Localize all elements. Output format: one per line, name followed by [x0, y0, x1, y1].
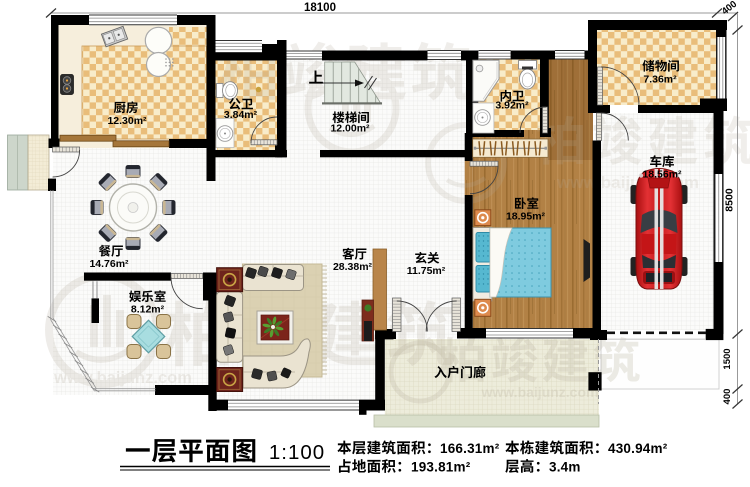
- svg-text:28.38m²: 28.38m²: [333, 261, 373, 273]
- svg-text:400: 400: [722, 389, 733, 405]
- svg-text:18.95m²: 18.95m²: [506, 211, 546, 223]
- svg-text:www.baijunz.com: www.baijunz.com: [53, 369, 192, 387]
- svg-text:12.00m²: 12.00m²: [330, 123, 370, 135]
- svg-text:3.4m: 3.4m: [549, 460, 581, 475]
- svg-text:12.30m²: 12.30m²: [107, 115, 147, 127]
- svg-text:166.31m²: 166.31m²: [440, 441, 500, 456]
- svg-text:18100: 18100: [304, 2, 336, 14]
- svg-text:8.12m²: 8.12m²: [131, 304, 165, 316]
- svg-text:14.76m²: 14.76m²: [89, 258, 129, 270]
- svg-text:www.baijunz.com: www.baijunz.com: [481, 384, 599, 400]
- svg-text:8500: 8500: [724, 188, 736, 212]
- svg-text:3.92m²: 3.92m²: [495, 100, 529, 112]
- svg-text:1500: 1500: [722, 348, 733, 369]
- svg-text:3.84m²: 3.84m²: [224, 109, 258, 121]
- svg-text:193.81m²: 193.81m²: [411, 460, 471, 475]
- svg-text:7.36m²: 7.36m²: [643, 74, 677, 86]
- svg-text:11.75m²: 11.75m²: [407, 265, 446, 277]
- svg-text:1:100: 1:100: [269, 441, 325, 464]
- svg-text:430.94m²: 430.94m²: [608, 441, 668, 456]
- svg-text:18.56m²: 18.56m²: [642, 169, 682, 181]
